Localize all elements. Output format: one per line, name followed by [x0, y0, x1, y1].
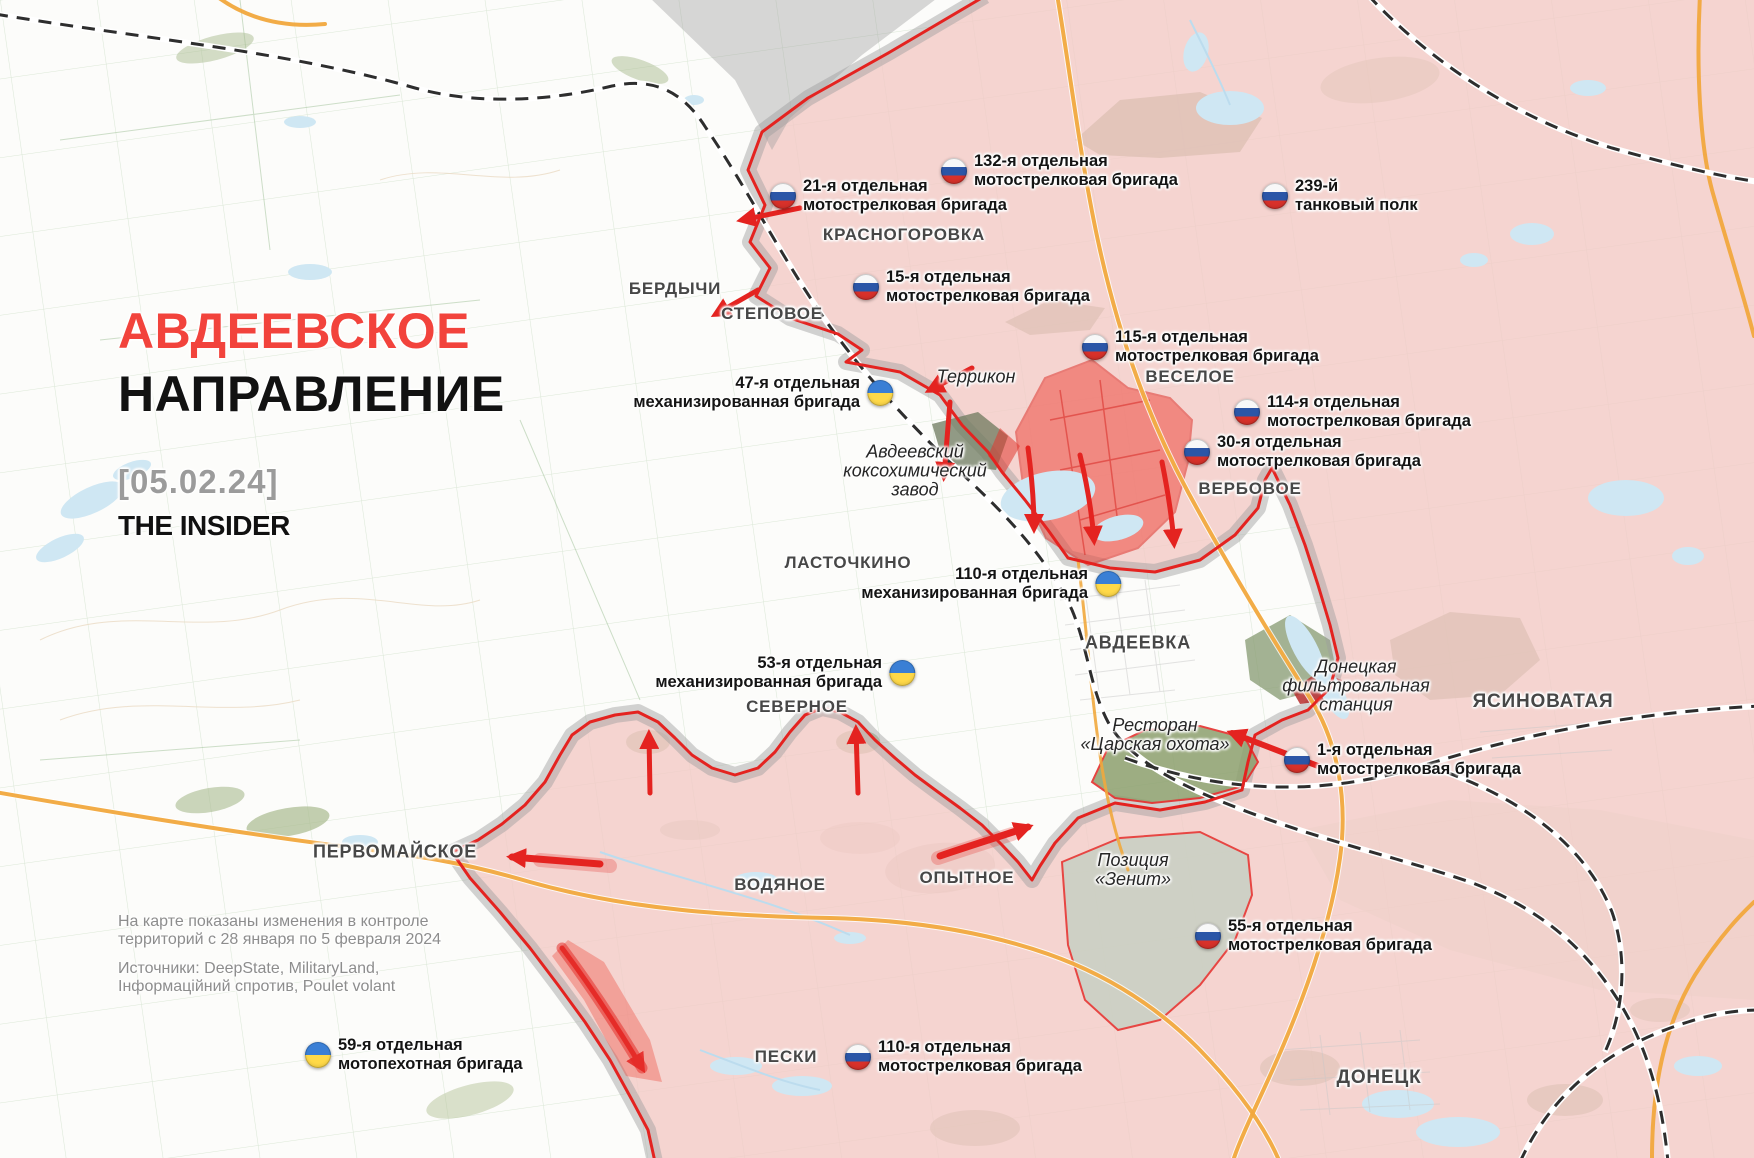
unit-label: 1-я отдельнаямотострелковая бригада	[1284, 741, 1521, 779]
unit-label-line: механизированная бригада	[861, 584, 1088, 603]
insider-logo: THE INSIDER	[118, 510, 505, 542]
title-block: АВДЕЕВСКОЕ НАПРАВЛЕНИЕ [05.02.24] THE IN…	[118, 300, 505, 542]
unit-label: 59-я отдельнаямотопехотная бригада	[305, 1036, 523, 1074]
unit-label-line: 114-я отдельная	[1267, 393, 1471, 412]
unit-label-line: мотострелковая бригада	[1267, 412, 1471, 431]
city-label: ЛАСТОЧКИНО	[785, 553, 912, 573]
unit-label-text: 132-я отдельнаямотострелковая бригада	[974, 152, 1178, 190]
unit-label-line: мотострелковая бригада	[878, 1057, 1082, 1076]
unit-label-line: мотопехотная бригада	[338, 1055, 523, 1074]
place-label-line: Позиция	[1095, 851, 1171, 870]
unit-label-line: 132-я отдельная	[974, 152, 1178, 171]
place-label-line: станция	[1282, 696, 1429, 715]
unit-label-text: 53-я отдельнаямеханизированная бригада	[655, 654, 882, 692]
unit-label-line: 110-я отдельная	[878, 1038, 1082, 1057]
unit-label-text: 1-я отдельнаямотострелковая бригада	[1317, 741, 1521, 779]
city-label: ВОДЯНОЕ	[734, 875, 826, 895]
note-line: Інформаційний спротив, Poulet volant	[118, 978, 441, 996]
russia-flag-icon	[1195, 923, 1221, 949]
unit-label: 114-я отдельнаямотострелковая бригада	[1234, 393, 1471, 431]
ukraine-flag-icon	[867, 380, 893, 406]
unit-label-line: 59-я отдельная	[338, 1036, 523, 1055]
note-line: На карте показаны изменения в контроле	[118, 913, 441, 931]
place-label-line: фильтровальная	[1282, 677, 1429, 696]
place-label-line: Террикон	[937, 368, 1016, 387]
unit-label-line: 15-я отдельная	[886, 268, 1090, 287]
place-label-line: «Царская охота»	[1080, 735, 1229, 754]
unit-label-line: танковый полк	[1295, 196, 1418, 215]
city-label: ДОНЕЦК	[1337, 1067, 1422, 1089]
place-label: Донецкаяфильтровальнаястанция	[1282, 658, 1429, 715]
ukraine-flag-icon	[889, 660, 915, 686]
unit-label-text: 114-я отдельнаямотострелковая бригада	[1267, 393, 1471, 431]
russia-flag-icon	[770, 183, 796, 209]
place-label: Ресторан«Царская охота»	[1080, 716, 1229, 754]
unit-label-text: 115-я отдельнаямотострелковая бригада	[1115, 328, 1319, 366]
unit-label: 115-я отдельнаямотострелковая бригада	[1082, 328, 1319, 366]
place-label-line: завод	[843, 481, 986, 500]
unit-label-line: мотострелковая бригада	[1217, 452, 1421, 471]
unit-label: 239-йтанковый полк	[1262, 177, 1418, 215]
unit-label-text: 47-я отдельнаямеханизированная бригада	[633, 374, 860, 412]
unit-label-text: 15-я отдельнаямотострелковая бригада	[886, 268, 1090, 306]
russia-flag-icon	[845, 1044, 871, 1070]
place-label-line: коксохимический	[843, 462, 986, 481]
city-label: КРАСНОГОРОВКА	[823, 225, 985, 245]
unit-label-line: 239-й	[1295, 177, 1418, 196]
place-label-line: «Зенит»	[1095, 870, 1171, 889]
unit-label-line: мотострелковая бригада	[1317, 760, 1521, 779]
note-line: Источники: DeepState, MilitaryLand,	[118, 960, 441, 978]
unit-label: 53-я отдельнаямеханизированная бригада	[655, 654, 915, 692]
ukraine-flag-icon	[305, 1042, 331, 1068]
city-label: СТЕПОВОЕ	[721, 304, 823, 324]
russia-flag-icon	[1234, 399, 1260, 425]
map-notes: На карте показаны изменения в контроле т…	[118, 913, 441, 996]
city-label: ПЕСКИ	[755, 1047, 817, 1067]
russia-flag-icon	[1284, 747, 1310, 773]
unit-label: 47-я отдельнаямеханизированная бригада	[633, 374, 893, 412]
city-label: СЕВЕРНОЕ	[746, 697, 848, 717]
unit-label-line: 55-я отдельная	[1228, 917, 1432, 936]
unit-label-line: механизированная бригада	[633, 393, 860, 412]
unit-label: 110-я отдельнаямотострелковая бригада	[845, 1038, 1082, 1076]
unit-label-line: мотострелковая бригада	[974, 171, 1178, 190]
unit-label-text: 110-я отдельнаямотострелковая бригада	[878, 1038, 1082, 1076]
ukraine-flag-icon	[1095, 571, 1121, 597]
note-line: территорий с 28 января по 5 февраля 2024	[118, 931, 441, 949]
russia-flag-icon	[1262, 183, 1288, 209]
unit-label-line: механизированная бригада	[655, 673, 882, 692]
place-label: Позиция«Зенит»	[1095, 851, 1171, 889]
city-label: БЕРДЫЧИ	[629, 279, 721, 299]
place-label-line: Донецкая	[1282, 658, 1429, 677]
city-label: ВЕРБОВОЕ	[1198, 479, 1301, 499]
unit-label-line: 53-я отдельная	[655, 654, 882, 673]
city-label: ОПЫТНОЕ	[920, 868, 1015, 888]
map-date: [05.02.24]	[118, 462, 505, 502]
unit-label-line: мотострелковая бригада	[803, 196, 1007, 215]
unit-label-line: 30-я отдельная	[1217, 433, 1421, 452]
russia-flag-icon	[853, 274, 879, 300]
place-label: Террикон	[937, 368, 1016, 387]
russia-flag-icon	[1082, 334, 1108, 360]
unit-label-line: мотострелковая бригада	[1115, 347, 1319, 366]
unit-label-line: 47-я отдельная	[633, 374, 860, 393]
russia-flag-icon	[941, 158, 967, 184]
unit-label: 15-я отдельнаямотострелковая бригада	[853, 268, 1090, 306]
place-label-line: Авдеевский	[843, 443, 986, 462]
city-label: ПЕРВОМАЙСКОЕ	[313, 842, 477, 863]
map-canvas: 21-я отдельнаямотострелковая бригада132-…	[0, 0, 1754, 1158]
unit-label-text: 30-я отдельнаямотострелковая бригада	[1217, 433, 1421, 471]
unit-label: 132-я отдельнаямотострелковая бригада	[941, 152, 1178, 190]
city-label: ВЕСЕЛОЕ	[1145, 367, 1234, 387]
city-label: АВДЕЕВКА	[1085, 633, 1191, 654]
unit-label: 55-я отдельнаямотострелковая бригада	[1195, 917, 1432, 955]
place-label: Авдеевскийкоксохимическийзавод	[843, 443, 986, 500]
unit-label-line: мотострелковая бригада	[1228, 936, 1432, 955]
unit-label: 30-я отдельнаямотострелковая бригада	[1184, 433, 1421, 471]
unit-label-line: мотострелковая бригада	[886, 287, 1090, 306]
unit-label-line: 115-я отдельная	[1115, 328, 1319, 347]
unit-label-line: 1-я отдельная	[1317, 741, 1521, 760]
place-label-line: Ресторан	[1080, 716, 1229, 735]
map-title-line2: НАПРАВЛЕНИЕ	[118, 362, 505, 426]
unit-label-text: 59-я отдельнаямотопехотная бригада	[338, 1036, 523, 1074]
unit-label-text: 239-йтанковый полк	[1295, 177, 1418, 215]
map-title-line1: АВДЕЕВСКОЕ	[118, 300, 505, 362]
unit-label-text: 55-я отдельнаямотострелковая бригада	[1228, 917, 1432, 955]
city-label: ЯСИНОВАТАЯ	[1473, 691, 1614, 713]
russia-flag-icon	[1184, 439, 1210, 465]
